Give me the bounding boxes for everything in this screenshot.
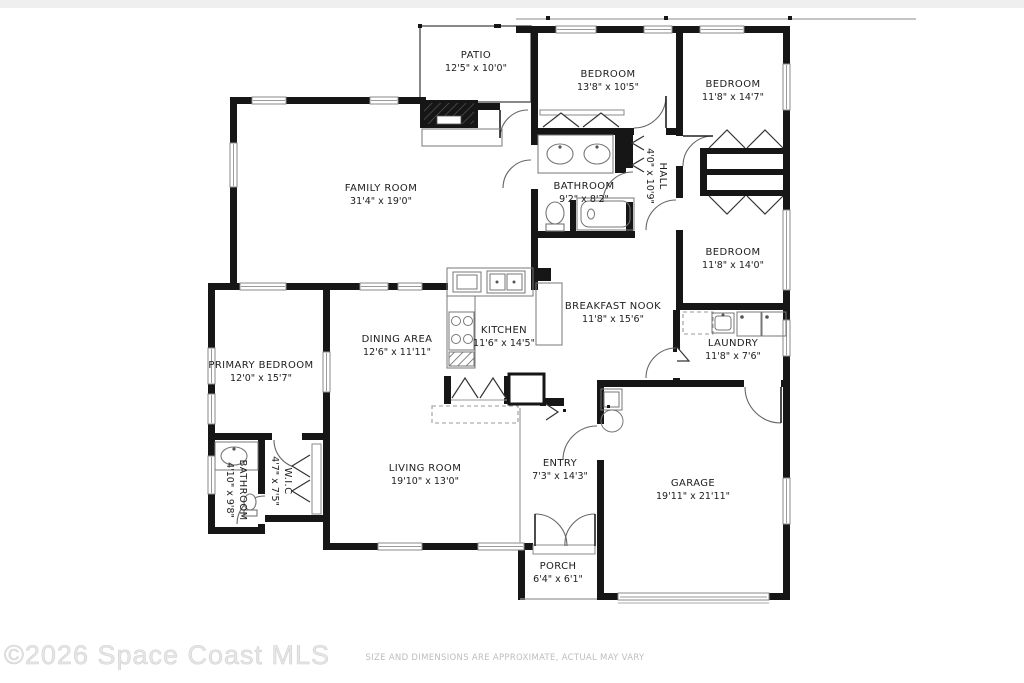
toilet-icon: [546, 202, 564, 231]
svg-text:DINING AREA: DINING AREA: [362, 334, 433, 345]
room-label-family-room: FAMILY ROOM 31'4" x 19'0": [345, 183, 418, 207]
svg-text:19'11" x 21'11": 19'11" x 21'11": [656, 491, 730, 502]
svg-text:19'10" x 13'0": 19'10" x 13'0": [391, 476, 459, 487]
primary-bath-fixtures: [215, 442, 258, 516]
svg-text:11'8" x 7'6": 11'8" x 7'6": [705, 351, 761, 362]
svg-text:11'8" x 14'7": 11'8" x 14'7": [702, 92, 764, 103]
room-label-hall: HALL 4'0" x 10'9": [644, 148, 668, 204]
range-icon: [449, 312, 474, 350]
svg-text:PRIMARY BEDROOM: PRIMARY BEDROOM: [208, 360, 313, 371]
svg-text:ENTRY: ENTRY: [543, 458, 578, 469]
svg-text:11'6" x 14'5": 11'6" x 14'5": [473, 338, 535, 349]
svg-text:4'10" x 9'8": 4'10" x 9'8": [224, 462, 235, 518]
room-label-primary-bedroom: PRIMARY BEDROOM 12'0" x 15'7": [208, 360, 313, 384]
svg-text:BEDROOM: BEDROOM: [706, 247, 761, 258]
refrigerator-icon: [449, 352, 474, 366]
front-double-door: [533, 514, 595, 554]
svg-text:HALL: HALL: [657, 162, 668, 189]
svg-text:9'2" x 8'2": 9'2" x 8'2": [559, 194, 609, 205]
floor-plan-drawing: PATIO 12'5" x 10'0" BEDROOM 13'8" x 10'5…: [0, 0, 1024, 683]
room-label-dining-area: DINING AREA 12'6" x 11'11": [362, 334, 433, 358]
room-label-patio: PATIO 12'5" x 10'0": [445, 50, 507, 74]
room-label-breakfast-nook: BREAKFAST NOOK 11'8" x 15'6": [565, 301, 661, 325]
room-label-bedroom-top: BEDROOM 13'8" x 10'5": [577, 69, 639, 93]
room-label-porch: PORCH 6'4" x 6'1": [533, 561, 583, 585]
svg-text:12'5" x 10'0": 12'5" x 10'0": [445, 63, 507, 74]
watermark: ©2026 Space Coast MLS: [4, 640, 330, 670]
dryer-icon: [762, 312, 786, 336]
svg-text:BATHROOM: BATHROOM: [237, 459, 248, 520]
room-label-wic: W.I.C 4'7" x 7'5": [269, 456, 293, 506]
pantry-closet: [509, 374, 544, 404]
breakfast-bar: [536, 283, 562, 345]
room-label-bathroom-primary: BATHROOM 4'10" x 9'8": [224, 459, 248, 520]
hearth: [422, 129, 502, 146]
svg-text:PATIO: PATIO: [461, 50, 491, 61]
washer-icon: [737, 312, 761, 336]
svg-text:4'0" x 10'9": 4'0" x 10'9": [644, 148, 655, 204]
svg-text:KITCHEN: KITCHEN: [481, 325, 527, 336]
disclaimer: SIZE AND DIMENSIONS ARE APPROXIMATE, ACT…: [366, 653, 645, 663]
floor-plan-page: PATIO 12'5" x 10'0" BEDROOM 13'8" x 10'5…: [0, 0, 1024, 683]
svg-text:11'8" x 15'6": 11'8" x 15'6": [582, 314, 644, 325]
svg-text:W.I.C: W.I.C: [282, 467, 293, 494]
half-wall-counter: [432, 406, 518, 423]
svg-text:BREAKFAST NOOK: BREAKFAST NOOK: [565, 301, 661, 312]
walls: [208, 26, 790, 600]
room-label-bedroom-top-right: BEDROOM 11'8" x 14'7": [702, 79, 764, 103]
svg-text:GARAGE: GARAGE: [671, 478, 715, 489]
svg-text:BEDROOM: BEDROOM: [706, 79, 761, 90]
photo-top-band: [0, 0, 1024, 8]
double-sink-vanity-icon: [538, 135, 613, 173]
svg-text:13'8" x 10'5": 13'8" x 10'5": [577, 82, 639, 93]
svg-text:LIVING ROOM: LIVING ROOM: [389, 463, 461, 474]
room-label-bedroom-right: BEDROOM 11'8" x 14'0": [702, 247, 764, 271]
room-label-garage: GARAGE 19'11" x 21'11": [656, 478, 730, 502]
laundry-fixtures: [683, 312, 786, 336]
svg-text:PORCH: PORCH: [540, 561, 577, 572]
svg-text:BATHROOM: BATHROOM: [553, 181, 614, 192]
svg-text:12'6" x 11'11": 12'6" x 11'11": [363, 347, 431, 358]
room-label-entry: ENTRY 7'3" x 14'3": [532, 458, 588, 482]
svg-text:FAMILY ROOM: FAMILY ROOM: [345, 183, 418, 194]
garage-door: [618, 593, 769, 603]
room-label-living-room: LIVING ROOM 19'10" x 13'0": [389, 463, 461, 487]
svg-text:BEDROOM: BEDROOM: [581, 69, 636, 80]
svg-text:12'0" x 15'7": 12'0" x 15'7": [230, 373, 292, 384]
water-softener-icon: [601, 410, 623, 432]
room-label-kitchen: KITCHEN 11'6" x 14'5": [473, 325, 535, 349]
room-label-bathroom-hall: BATHROOM 9'2" x 8'2": [553, 181, 614, 205]
svg-text:7'3" x 14'3": 7'3" x 14'3": [532, 471, 588, 482]
svg-text:4'7" x 7'5": 4'7" x 7'5": [269, 456, 280, 506]
kitchen-counter: [447, 268, 562, 368]
roofline: [516, 16, 916, 20]
svg-text:31'4" x 19'0": 31'4" x 19'0": [350, 196, 412, 207]
svg-text:11'8" x 14'0": 11'8" x 14'0": [702, 260, 764, 271]
garage-fixtures: [601, 389, 623, 432]
svg-text:6'4" x 6'1": 6'4" x 6'1": [533, 574, 583, 585]
svg-text:LAUNDRY: LAUNDRY: [708, 338, 759, 349]
room-label-laundry: LAUNDRY 11'8" x 7'6": [705, 338, 761, 362]
